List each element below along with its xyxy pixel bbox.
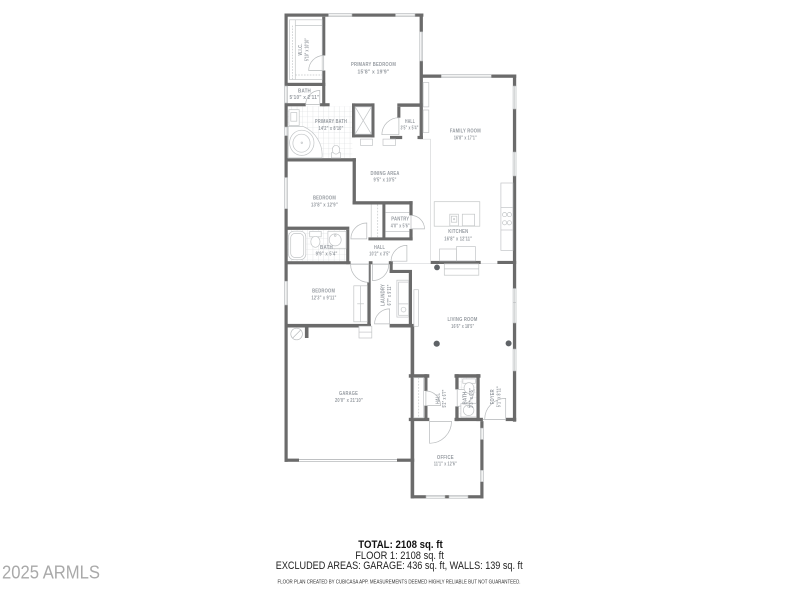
svg-text:EXCLUDED AREAS: GARAGE: 436 sq: EXCLUDED AREAS: GARAGE: 436 sq. ft, WALL… [276, 560, 523, 572]
svg-text:W.I.C.: W.I.C. [298, 43, 304, 55]
svg-text:HALL: HALL [435, 393, 441, 404]
svg-text:16'8" x 17'1": 16'8" x 17'1" [454, 135, 477, 141]
svg-text:6'7" x 9'11": 6'7" x 9'11" [387, 284, 393, 305]
svg-text:BATH: BATH [298, 89, 311, 95]
svg-text:LAUNDRY: LAUNDRY [380, 284, 386, 306]
svg-text:PRIMARY BEDROOM: PRIMARY BEDROOM [351, 62, 396, 68]
svg-text:DINING AREA: DINING AREA [371, 171, 400, 177]
svg-text:20'0" x 21'10": 20'0" x 21'10" [335, 398, 363, 404]
svg-text:15'8" x 19'9": 15'8" x 19'9" [358, 69, 390, 75]
svg-text:16'6" x 18'5": 16'6" x 18'5" [451, 324, 474, 330]
svg-text:9'5" x 10'5": 9'5" x 10'5" [374, 177, 397, 183]
svg-text:BATH: BATH [320, 245, 333, 251]
svg-text:12'3" x 9'11": 12'3" x 9'11" [312, 296, 337, 302]
svg-text:HALL: HALL [405, 119, 415, 125]
svg-text:LIVING ROOM: LIVING ROOM [448, 317, 478, 323]
svg-text:3'3" x 6'5": 3'3" x 6'5" [469, 388, 475, 408]
svg-text:3'5" x 5'4": 3'5" x 5'4" [401, 125, 419, 131]
svg-text:FLOOR PLAN CREATED BY CUBICASA: FLOOR PLAN CREATED BY CUBICASA APP. MEAS… [278, 580, 521, 586]
svg-text:4'0" x 5'6": 4'0" x 5'6" [391, 223, 410, 229]
svg-text:14'2" x 8'10": 14'2" x 8'10" [319, 126, 344, 132]
svg-text:KITCHEN: KITCHEN [448, 229, 468, 235]
svg-text:OFFICE: OFFICE [437, 455, 454, 461]
svg-text:BEDROOM: BEDROOM [313, 195, 336, 201]
svg-text:GARAGE: GARAGE [339, 391, 358, 397]
svg-text:FOYER: FOYER [490, 389, 496, 404]
svg-text:5'1" x 8'11": 5'1" x 8'11" [496, 386, 502, 407]
svg-text:5'10" x 10'10": 5'10" x 10'10" [305, 38, 311, 61]
svg-text:16'8" x 12'11": 16'8" x 12'11" [444, 236, 472, 242]
svg-text:11'1" x 12'6": 11'1" x 12'6" [434, 461, 457, 467]
svg-text:FAMILY ROOM: FAMILY ROOM [450, 128, 481, 134]
svg-text:HALL: HALL [374, 245, 385, 251]
svg-text:PRIMARY BATH: PRIMARY BATH [315, 119, 347, 125]
svg-text:9'9" x 5'4": 9'9" x 5'4" [316, 251, 338, 257]
svg-text:5'2" x 6'7": 5'2" x 6'7" [442, 389, 448, 407]
svg-text:BATH: BATH [462, 392, 468, 405]
svg-text:13'8" x 12'9": 13'8" x 12'9" [311, 202, 338, 208]
svg-text:BEDROOM: BEDROOM [312, 288, 335, 294]
svg-text:5'10" x 2'11": 5'10" x 2'11" [290, 95, 320, 101]
svg-text:2025 ARMLS: 2025 ARMLS [2, 562, 100, 583]
svg-text:10'2" x 3'5": 10'2" x 3'5" [369, 251, 390, 257]
svg-text:PANTRY: PANTRY [391, 217, 409, 223]
